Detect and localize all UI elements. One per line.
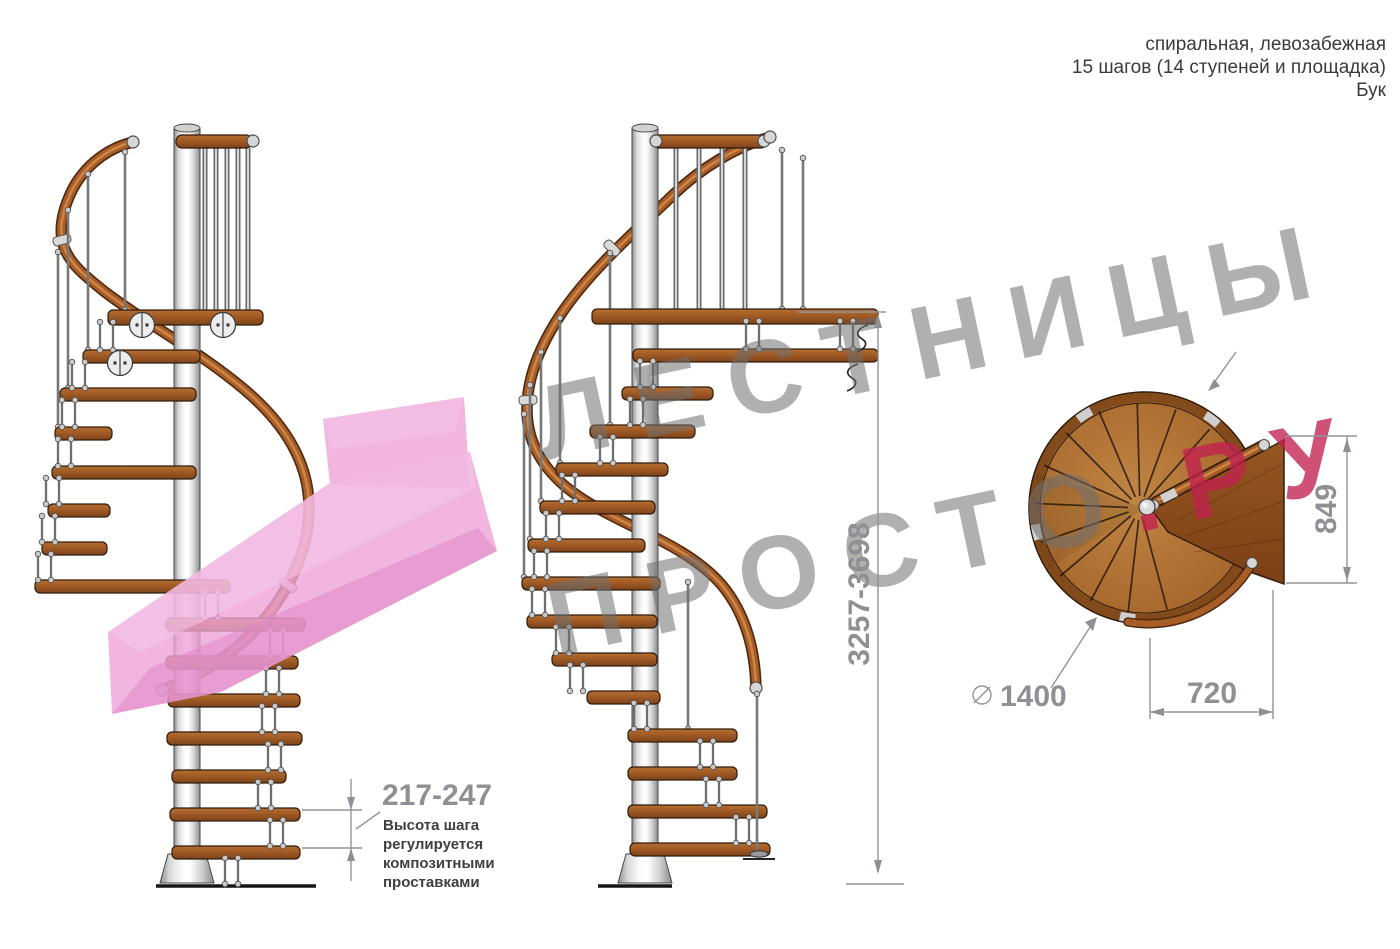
material-label: Бук	[1072, 79, 1386, 102]
joint	[48, 551, 54, 557]
dim-diameter: 1400	[973, 617, 1097, 713]
joint	[521, 411, 527, 417]
joint	[538, 349, 544, 355]
joint	[97, 347, 103, 353]
joint	[265, 767, 271, 773]
plan-leader-arrow	[1208, 352, 1236, 391]
joint	[259, 703, 265, 709]
tread	[628, 729, 737, 742]
joint	[268, 779, 274, 785]
watermark-line2-main: ПРОСТО	[537, 442, 1142, 679]
joint	[531, 548, 537, 554]
joint	[222, 855, 228, 861]
rail-cap	[247, 135, 259, 147]
joint	[235, 855, 241, 861]
joint	[272, 703, 278, 709]
joint	[716, 802, 722, 808]
stair-type-label: спиральная, левозабежная	[1072, 33, 1386, 56]
joint	[697, 738, 703, 744]
joint	[543, 510, 549, 516]
joint	[607, 250, 613, 256]
joint	[559, 498, 565, 504]
disc-bolt	[113, 361, 116, 364]
joint	[68, 463, 74, 469]
joint	[52, 539, 58, 545]
disc-bolt	[145, 323, 148, 326]
pole-cap	[174, 124, 200, 132]
joint	[703, 802, 709, 808]
joint	[572, 498, 578, 504]
joint	[59, 424, 65, 430]
joint	[529, 612, 535, 618]
joint	[235, 881, 241, 887]
joint	[43, 475, 49, 481]
joint	[631, 700, 637, 706]
joint	[85, 171, 91, 177]
joint	[56, 501, 62, 507]
joint	[55, 249, 61, 255]
joint	[59, 397, 65, 403]
joint	[644, 726, 650, 732]
dim-platform-side-label: 849	[1310, 484, 1343, 534]
joint	[746, 840, 752, 846]
joint	[733, 814, 739, 820]
step-height-note: Высота шага регулируется композитными пр…	[383, 817, 499, 891]
joint	[567, 688, 573, 694]
note-line: регулируется	[383, 836, 483, 853]
joint	[35, 577, 41, 583]
disc-bolt	[216, 323, 219, 326]
joint	[259, 729, 265, 735]
note-line: композитными	[383, 855, 495, 872]
joint	[276, 665, 282, 671]
joint	[263, 691, 269, 697]
dim-platform-offset-label: 720	[1187, 677, 1237, 710]
joint	[97, 319, 103, 325]
joint	[35, 551, 41, 557]
joint	[65, 207, 71, 213]
joint	[697, 764, 703, 770]
joint	[544, 548, 550, 554]
joint	[531, 574, 537, 580]
tread	[52, 466, 196, 479]
pole-cap	[632, 124, 658, 132]
tread	[60, 388, 196, 401]
joint	[276, 691, 282, 697]
joint	[280, 843, 286, 849]
rail-end-cap	[127, 136, 139, 148]
joint	[754, 691, 760, 697]
dim-step-height-label: 217-247	[382, 779, 492, 812]
joint	[48, 577, 54, 583]
joint	[82, 359, 88, 365]
joint	[222, 881, 228, 887]
joint	[779, 147, 785, 153]
joint	[255, 805, 261, 811]
joint	[110, 319, 116, 325]
joint	[703, 776, 709, 782]
disc-bolt	[123, 361, 126, 364]
joint	[556, 510, 562, 516]
joint	[710, 764, 716, 770]
rail-end-cap	[764, 131, 776, 143]
left-elevation-view	[35, 124, 316, 887]
joint	[543, 536, 549, 542]
disc-bolt	[135, 323, 138, 326]
joint	[644, 700, 650, 706]
landing-rail	[176, 135, 252, 148]
joint	[69, 359, 75, 365]
joint	[55, 436, 61, 442]
joint	[268, 805, 274, 811]
drawing-canvas: ЛЕСТНИЦЫ ПРОСТО.РУ 3257-3698 217-247 Выс…	[0, 0, 1400, 949]
dim-total-height-label: 3257-3698	[843, 522, 876, 665]
joint	[529, 586, 535, 592]
joint	[733, 840, 739, 846]
joint	[580, 688, 586, 694]
joint	[39, 539, 45, 545]
disc-bolt	[226, 323, 229, 326]
joint	[746, 814, 752, 820]
joint	[557, 315, 563, 321]
joint	[278, 767, 284, 773]
joint	[72, 424, 78, 430]
dim-step-height: 217-247 Высота шага регулируется компози…	[302, 779, 499, 891]
joint	[556, 536, 562, 542]
joint	[278, 741, 284, 747]
joint	[280, 817, 286, 823]
joint	[631, 726, 637, 732]
joint	[716, 776, 722, 782]
note-line: Высота шага	[383, 817, 480, 834]
title-block: спиральная, левозабежная 15 шагов (14 ст…	[1072, 33, 1386, 102]
dim-diameter-label: 1400	[1000, 680, 1067, 713]
step-count-label: 15 шагов (14 ступеней и площадка)	[1072, 56, 1386, 79]
joint	[800, 155, 806, 161]
note-line: проставками	[383, 874, 480, 891]
staircase-technical-drawing: ЛЕСТНИЦЫ ПРОСТО.РУ 3257-3698 217-247 Выс…	[0, 0, 1400, 949]
joint	[272, 729, 278, 735]
joint	[82, 385, 88, 391]
rail-end-cap	[1247, 558, 1258, 569]
joint	[255, 779, 261, 785]
joint	[55, 463, 61, 469]
joint	[68, 436, 74, 442]
watermark-arrow	[108, 397, 497, 714]
pole-base	[618, 854, 672, 883]
joint	[265, 741, 271, 747]
joint	[56, 475, 62, 481]
joint	[267, 817, 273, 823]
post-foot	[750, 851, 768, 857]
joint	[710, 738, 716, 744]
joint	[39, 513, 45, 519]
landing-rail	[653, 135, 767, 148]
joint	[267, 843, 273, 849]
rail-cap	[650, 135, 662, 147]
joint	[69, 385, 75, 391]
center-pole	[632, 128, 658, 854]
joint	[122, 149, 128, 155]
joint	[43, 501, 49, 507]
joint	[72, 397, 78, 403]
joint	[52, 513, 58, 519]
